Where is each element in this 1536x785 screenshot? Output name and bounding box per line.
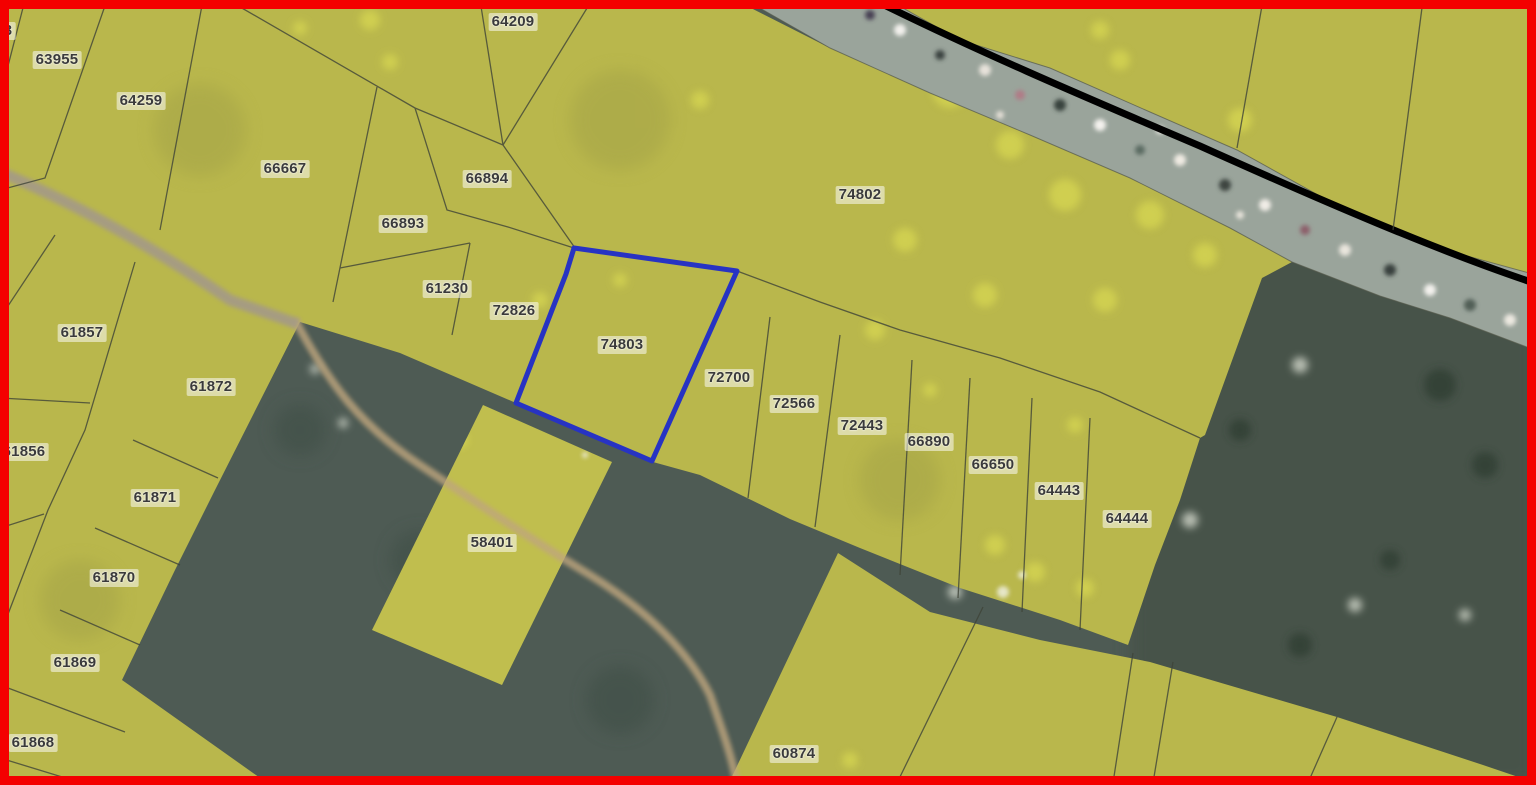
parcel-label-layer: 3639556425964209666676689466893612307282… [0, 0, 1536, 785]
parcel-label-64209: 64209 [489, 13, 538, 31]
parcel-label-66890: 66890 [905, 433, 954, 451]
parcel-label-61872: 61872 [187, 378, 236, 396]
parcel-label-64259: 64259 [117, 92, 166, 110]
parcel-label-66894: 66894 [463, 170, 512, 188]
parcel-label-60874: 60874 [770, 745, 819, 763]
parcel-label-63955: 63955 [33, 51, 82, 69]
parcel-label-61856: 61856 [0, 443, 48, 461]
cadastral-map-viewport[interactable]: 3639556425964209666676689466893612307282… [0, 0, 1536, 785]
parcel-label-58401: 58401 [468, 534, 517, 552]
parcel-label-61230: 61230 [423, 280, 472, 298]
parcel-label-72826: 72826 [490, 302, 539, 320]
parcel-label-74802: 74802 [836, 186, 885, 204]
parcel-label-61870: 61870 [90, 569, 139, 587]
parcel-label-66893: 66893 [379, 215, 428, 233]
parcel-label-64444: 64444 [1103, 510, 1152, 528]
parcel-label-64443: 64443 [1035, 482, 1084, 500]
parcel-label-66650: 66650 [969, 456, 1018, 474]
parcel-label-61857: 61857 [58, 324, 107, 342]
parcel-label-61871: 61871 [131, 489, 180, 507]
parcel-label-74803: 74803 [598, 336, 647, 354]
parcel-label-72443: 72443 [838, 417, 887, 435]
parcel-label-3: 3 [1, 22, 16, 40]
parcel-label-66667: 66667 [261, 160, 310, 178]
parcel-label-61868: 61868 [9, 734, 58, 752]
parcel-label-61869: 61869 [51, 654, 100, 672]
parcel-label-72700: 72700 [705, 369, 754, 387]
parcel-label-72566: 72566 [770, 395, 819, 413]
